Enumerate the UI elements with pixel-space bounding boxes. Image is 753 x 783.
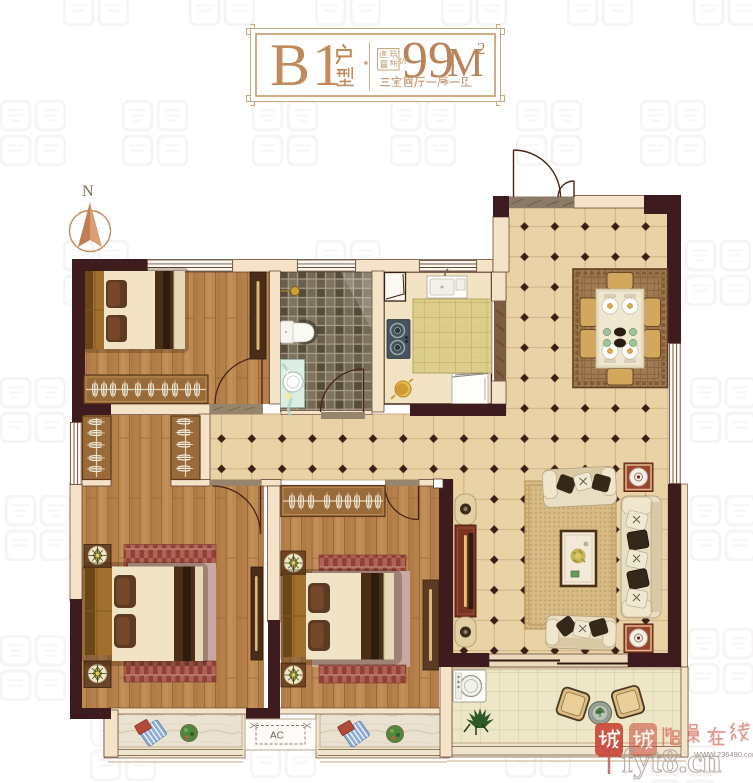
svg-text:N: N — [82, 183, 94, 200]
svg-text:AC: AC — [270, 731, 284, 742]
svg-text:B1: B1 — [270, 32, 344, 98]
svg-text:fyt8.cn: fyt8.cn — [622, 743, 721, 780]
svg-text:2: 2 — [477, 39, 486, 58]
